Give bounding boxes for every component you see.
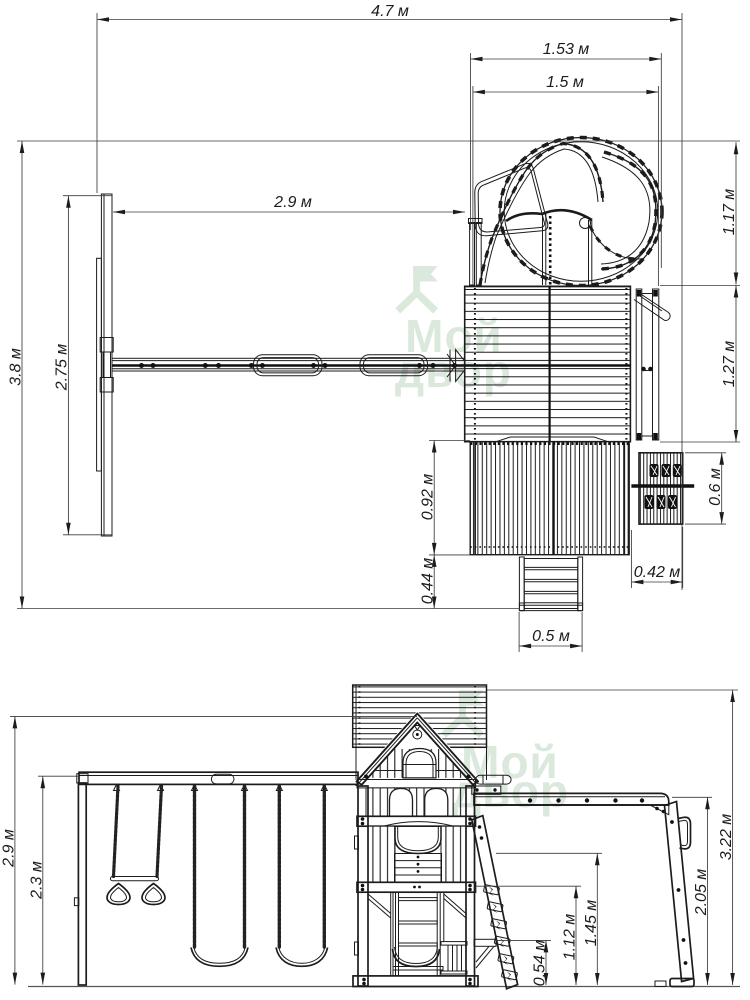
svg-text:0.5 м: 0.5 м: [532, 628, 570, 645]
svg-text:2.05 м: 2.05 м: [693, 869, 710, 917]
svg-text:1.5 м: 1.5 м: [546, 74, 584, 91]
svg-text:двор: двор: [395, 345, 512, 397]
svg-text:0.92 м: 0.92 м: [420, 474, 437, 521]
svg-text:0.44 м: 0.44 м: [420, 558, 437, 605]
svg-text:3.8 м: 3.8 м: [8, 348, 25, 386]
svg-text:0.6 м: 0.6 м: [707, 468, 724, 506]
svg-text:2.9 м: 2.9 м: [1, 829, 18, 868]
svg-text:0.42 м: 0.42 м: [634, 564, 681, 581]
svg-text:1.12 м: 1.12 м: [562, 914, 579, 961]
svg-text:4.7 м: 4.7 м: [371, 3, 409, 20]
svg-text:двор: двор: [452, 765, 569, 817]
svg-text:2.9 м: 2.9 м: [273, 194, 312, 211]
svg-text:1.17 м: 1.17 м: [721, 189, 738, 236]
svg-text:1.53 м: 1.53 м: [543, 41, 590, 58]
svg-text:1.45 м: 1.45 м: [583, 900, 600, 947]
svg-text:0.54 м: 0.54 м: [532, 940, 549, 987]
svg-text:1.27 м: 1.27 м: [721, 341, 738, 388]
svg-text:2.3 м: 2.3 м: [29, 861, 46, 900]
svg-text:2.75 м: 2.75 м: [54, 344, 71, 392]
svg-text:3.22 м: 3.22 м: [718, 814, 735, 861]
